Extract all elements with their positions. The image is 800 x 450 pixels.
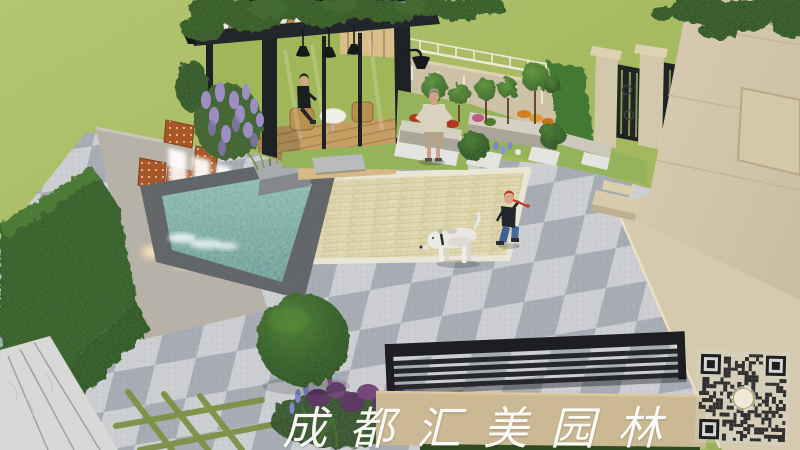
facade-panel — [738, 88, 800, 175]
fence-pier — [638, 50, 664, 150]
qr-finder-bottom-left — [699, 419, 720, 440]
garden-rendering: 成都汇美园林 — [0, 0, 800, 450]
qr-finder-top-right — [766, 356, 787, 377]
wicker-chair — [352, 102, 373, 122]
fence-pier — [594, 52, 618, 148]
scene-canvas — [0, 0, 800, 450]
company-watermark: 成都汇美园林 — [282, 392, 684, 450]
pavilion-post — [262, 30, 277, 158]
qr-code — [695, 350, 790, 445]
qr-finder-top-left — [701, 354, 722, 375]
